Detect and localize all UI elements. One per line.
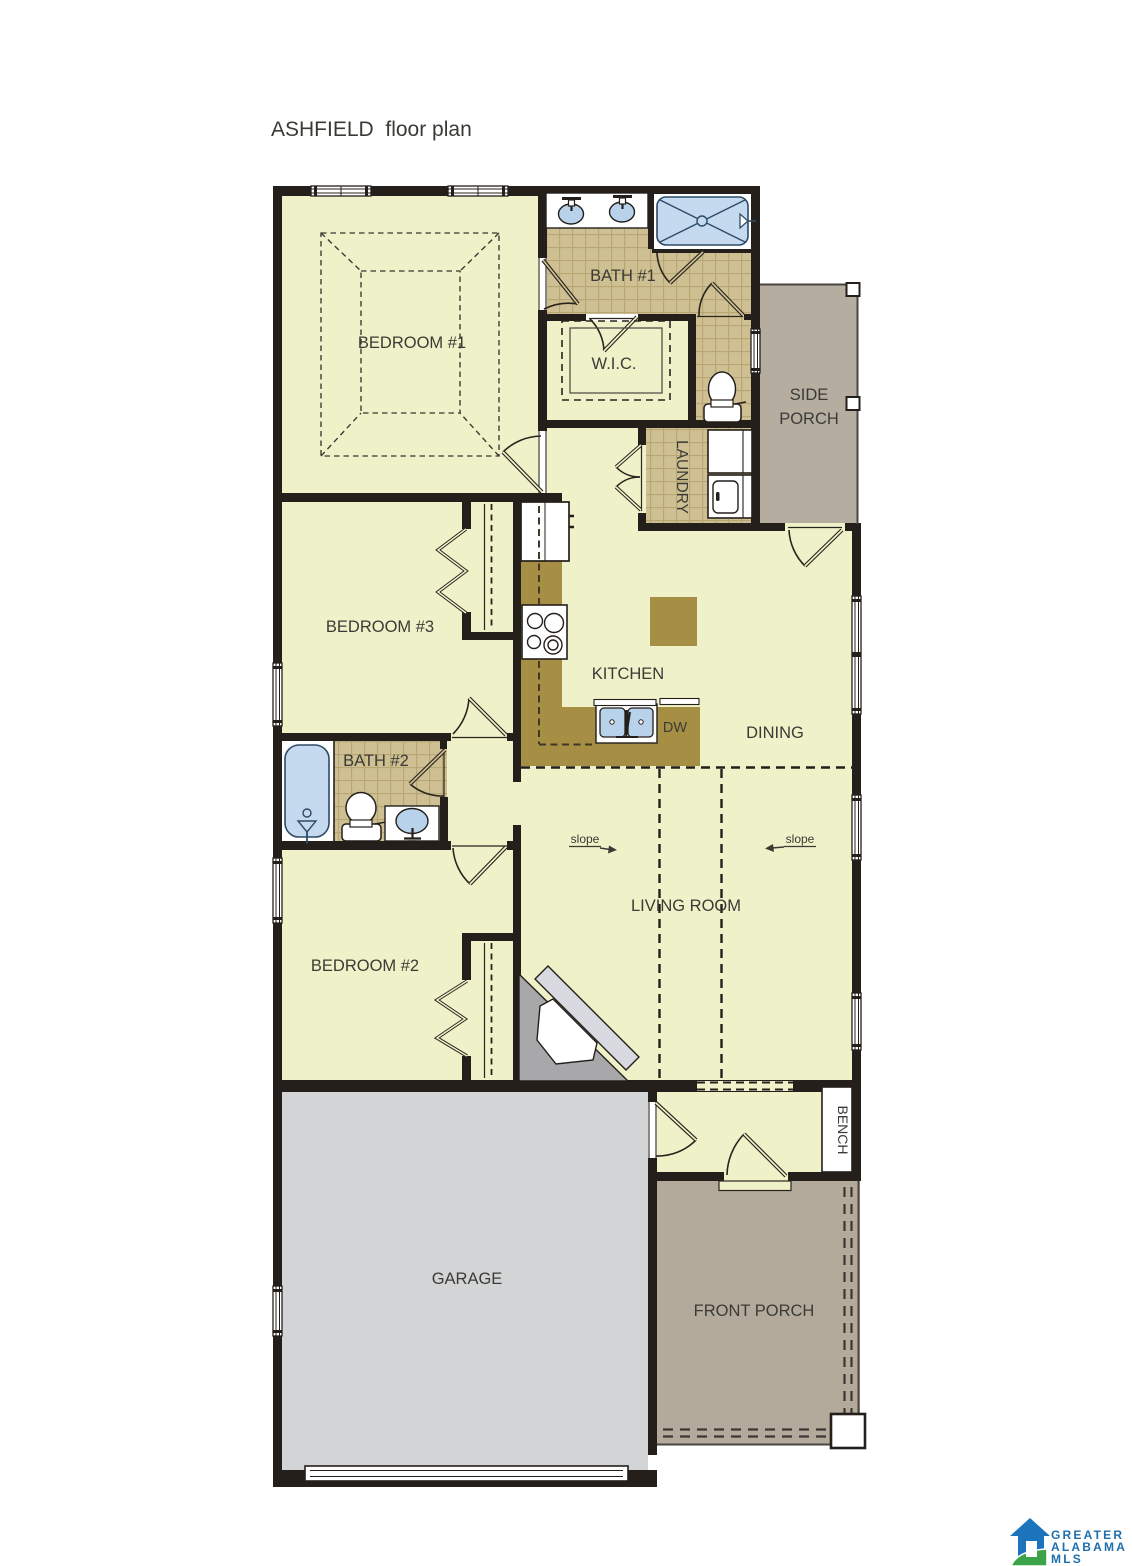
svg-text:LIVING ROOM: LIVING ROOM xyxy=(631,897,741,915)
svg-text:BENCH: BENCH xyxy=(835,1105,851,1154)
svg-text:BEDROOM #1: BEDROOM #1 xyxy=(358,334,466,352)
svg-text:LAUNDRY: LAUNDRY xyxy=(673,440,690,514)
svg-text:BATH #1: BATH #1 xyxy=(590,267,656,285)
svg-text:BATH #2: BATH #2 xyxy=(343,752,409,770)
svg-text:DW: DW xyxy=(663,720,687,736)
svg-text:ASHFIELD floor plan: ASHFIELD floor plan xyxy=(271,118,472,141)
svg-text:FRONT PORCH: FRONT PORCH xyxy=(694,1302,815,1320)
svg-text:MLS: MLS xyxy=(1051,1552,1083,1566)
svg-text:BEDROOM #3: BEDROOM #3 xyxy=(326,618,434,636)
svg-text:BEDROOM #2: BEDROOM #2 xyxy=(311,957,419,975)
svg-text:KITCHEN: KITCHEN xyxy=(592,665,664,683)
svg-text:slope: slope xyxy=(571,832,600,846)
svg-text:PORCH: PORCH xyxy=(779,410,839,428)
svg-text:slope: slope xyxy=(786,832,815,846)
svg-text:W.I.C.: W.I.C. xyxy=(592,355,637,373)
svg-text:GARAGE: GARAGE xyxy=(432,1270,503,1288)
svg-text:SIDE: SIDE xyxy=(790,386,829,404)
svg-text:DINING: DINING xyxy=(746,724,804,742)
